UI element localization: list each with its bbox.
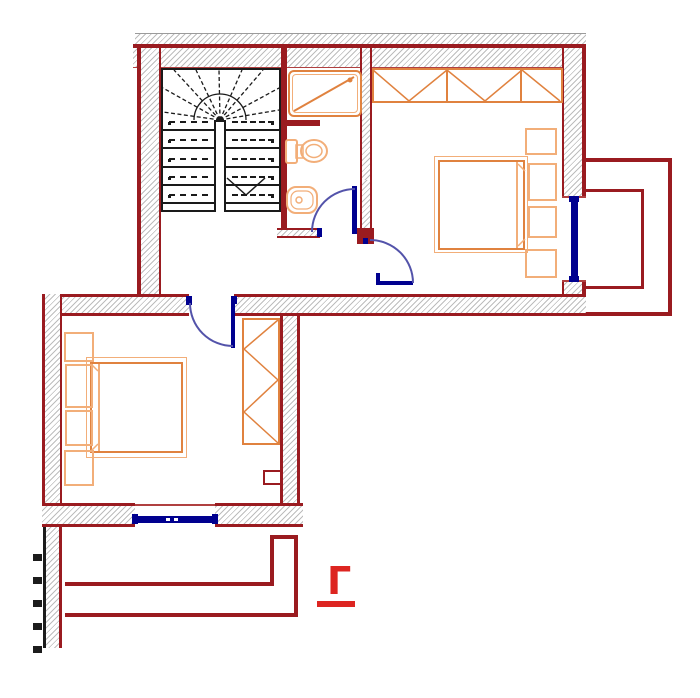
door-leaf-bedroom-right: [376, 281, 413, 285]
headboard-cell: [528, 206, 557, 238]
wall-right-upper: [562, 48, 586, 198]
door-leaf-bedroom-bottom: [231, 302, 235, 348]
wall-left-lower: [42, 294, 62, 527]
wardrobe-divider: [520, 70, 522, 101]
bed-pillow-line: [98, 364, 100, 451]
wall-bathroom-right: [360, 48, 372, 180]
window-sill-line: [135, 504, 215, 506]
wardrobe-top: [372, 68, 563, 103]
door-jamb: [376, 273, 380, 285]
window-sash-mark: [166, 518, 170, 521]
wall-bedroom-right: [280, 316, 300, 503]
balcony-right-inner: [586, 189, 644, 289]
wall-tick: [33, 577, 42, 584]
door-leaf-bathroom: [352, 186, 357, 234]
wall-below-bedroom-strip: [43, 527, 62, 648]
nightstand: [525, 249, 557, 278]
floor-plan: Г: [0, 0, 700, 698]
wardrobe-side: [242, 318, 280, 445]
nightstand: [64, 450, 94, 486]
wall-bathroom-bottom: [277, 228, 320, 238]
wall-tick: [33, 554, 42, 561]
stair-divider: [214, 120, 226, 212]
radiator: [263, 470, 282, 485]
section-marker-underline: [317, 601, 355, 607]
wall-top-outer-strip: [135, 33, 586, 44]
wall-tick: [33, 623, 42, 630]
headboard-cell: [65, 364, 93, 408]
door-jamb: [186, 296, 192, 305]
door-jamb: [363, 238, 368, 244]
window-right: [571, 200, 578, 278]
wall-stub-shower: [282, 120, 320, 126]
door-jamb: [317, 228, 322, 237]
bed-mattress-right: [438, 160, 525, 250]
wall-tick: [33, 600, 42, 607]
door-arc-bathroom: [312, 189, 355, 232]
wall-pier: [360, 180, 372, 228]
door-opening-bedroom-bottom: [189, 289, 234, 321]
window-sash-mark: [174, 518, 178, 521]
toilet: [286, 140, 327, 163]
window-jamb: [212, 514, 218, 524]
window-jamb: [132, 514, 138, 524]
door-jamb: [231, 296, 237, 304]
wall-middle-band: [42, 294, 586, 316]
bed-pillow-line: [516, 162, 518, 248]
shower-inner: [292, 74, 358, 113]
wardrobe-divider: [446, 70, 448, 101]
wall-left-upper: [137, 48, 161, 296]
headboard-cell: [65, 410, 93, 446]
nightstand: [525, 128, 557, 155]
nightstand: [64, 332, 94, 362]
headboard-cell: [528, 163, 557, 201]
bidet: [287, 187, 317, 213]
section-marker: Г: [327, 562, 351, 600]
bed-mattress-left: [90, 362, 183, 453]
window-jamb: [569, 196, 579, 202]
window-jamb: [569, 276, 579, 282]
wall-tick: [33, 646, 42, 653]
wall-bathroom-left: [281, 48, 287, 236]
balcony-bottom-rail: [65, 537, 296, 615]
